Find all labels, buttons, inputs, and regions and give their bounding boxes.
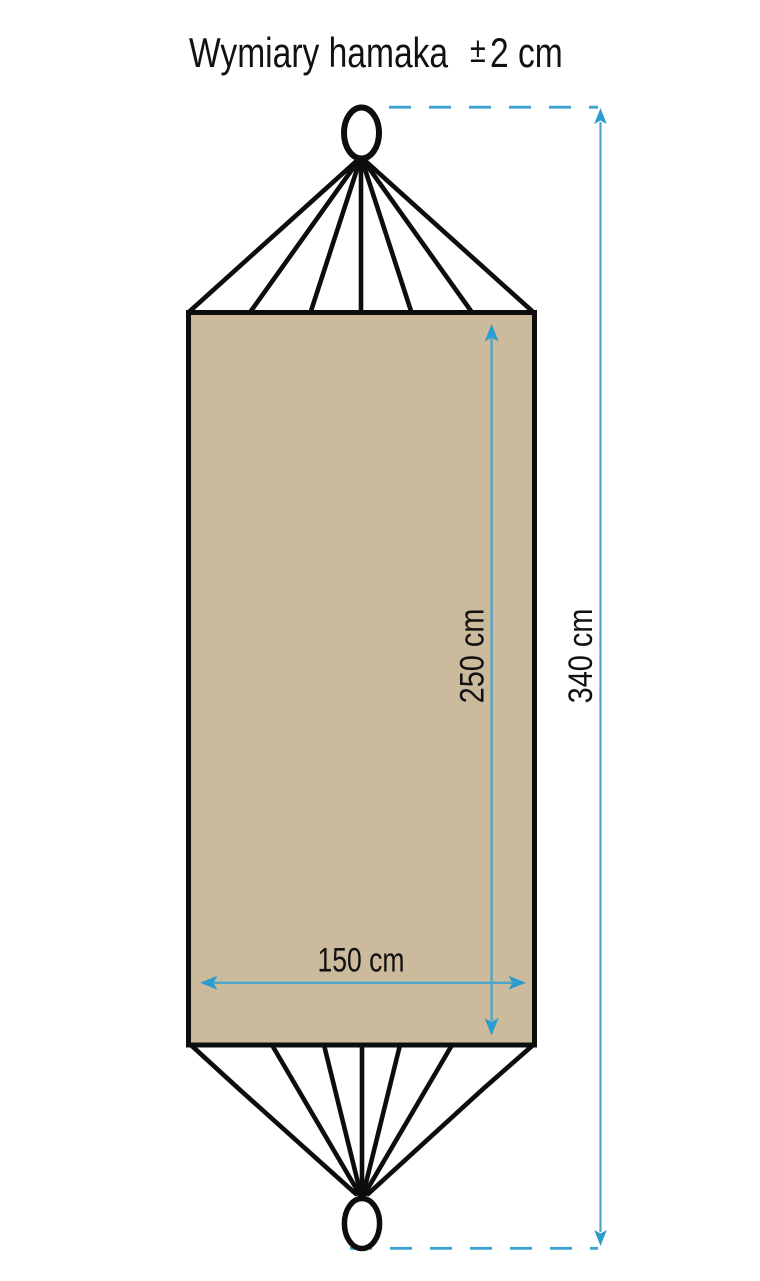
svg-text:250 cm: 250 cm bbox=[452, 609, 491, 704]
svg-text:Wymiary hamaka: Wymiary hamaka bbox=[189, 31, 449, 77]
svg-text:±: ± bbox=[470, 29, 486, 70]
svg-text:340 cm: 340 cm bbox=[561, 609, 600, 704]
svg-text:150 cm: 150 cm bbox=[318, 941, 405, 979]
svg-text:2 cm: 2 cm bbox=[490, 31, 563, 77]
